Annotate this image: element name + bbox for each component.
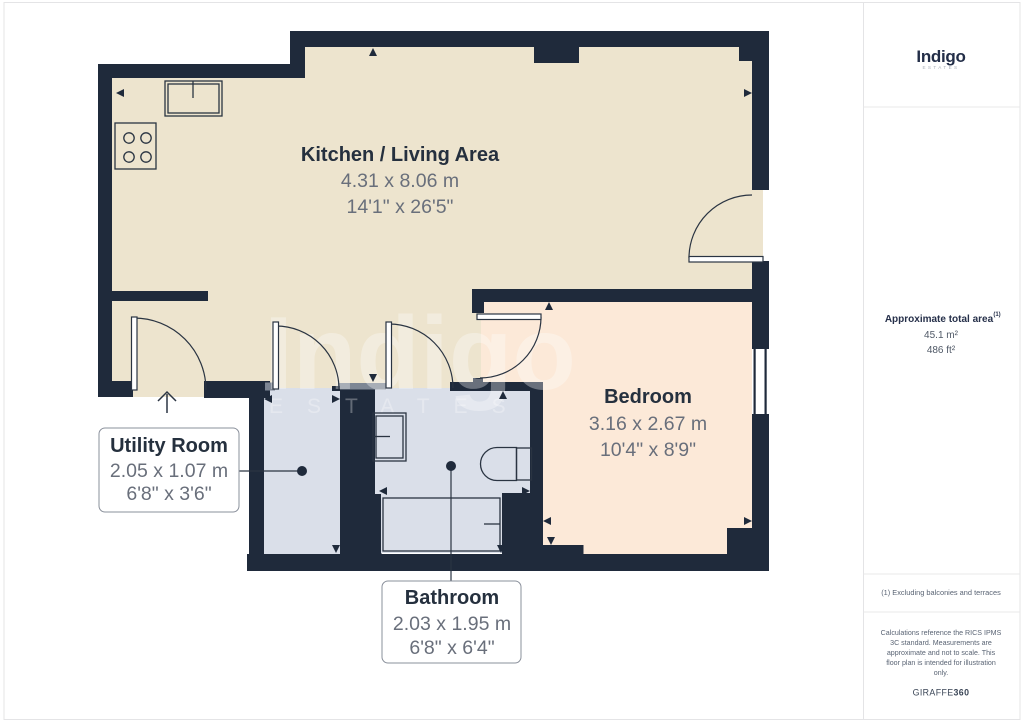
svg-text:Bedroom: Bedroom xyxy=(604,386,692,408)
svg-text:486 ft²: 486 ft² xyxy=(927,345,956,356)
svg-text:Kitchen / Living Area: Kitchen / Living Area xyxy=(301,144,500,166)
svg-text:Bathroom: Bathroom xyxy=(405,587,499,609)
svg-text:GIRAFFE360: GIRAFFE360 xyxy=(913,688,970,698)
svg-text:14'1" x 26'5": 14'1" x 26'5" xyxy=(347,196,454,218)
svg-text:10'4" x 8'9": 10'4" x 8'9" xyxy=(600,439,696,461)
svg-text:approximate and not to scale.: approximate and not to scale. This xyxy=(887,649,996,657)
svg-text:ESTATES: ESTATES xyxy=(269,395,530,418)
svg-text:(1) Excluding balconies and te: (1) Excluding balconies and terraces xyxy=(881,588,1001,597)
svg-text:2.05 x 1.07 m: 2.05 x 1.07 m xyxy=(110,460,228,482)
svg-text:Approximate total area: Approximate total area xyxy=(885,314,994,325)
svg-text:6'8" x 6'4": 6'8" x 6'4" xyxy=(409,637,494,659)
svg-text:Utility Room: Utility Room xyxy=(110,435,228,457)
svg-text:6'8" x 3'6": 6'8" x 3'6" xyxy=(126,483,211,505)
svg-text:Calculations reference the RIC: Calculations reference the RICS IPMS xyxy=(881,629,1002,637)
svg-text:2.03 x 1.95 m: 2.03 x 1.95 m xyxy=(393,613,511,635)
svg-text:45.1 m²: 45.1 m² xyxy=(924,330,959,341)
svg-text:Indigo: Indigo xyxy=(916,47,965,66)
svg-text:4.31 x 8.06 m: 4.31 x 8.06 m xyxy=(341,170,459,192)
svg-text:ESTATES: ESTATES xyxy=(922,65,959,70)
svg-text:3C standard. Measurements are: 3C standard. Measurements are xyxy=(890,639,992,647)
svg-text:(1): (1) xyxy=(993,312,1000,318)
svg-text:3.16 x 2.67 m: 3.16 x 2.67 m xyxy=(589,413,707,435)
svg-text:floor plan is intended for ill: floor plan is intended for illustration xyxy=(886,659,996,667)
svg-text:only.: only. xyxy=(934,669,948,677)
